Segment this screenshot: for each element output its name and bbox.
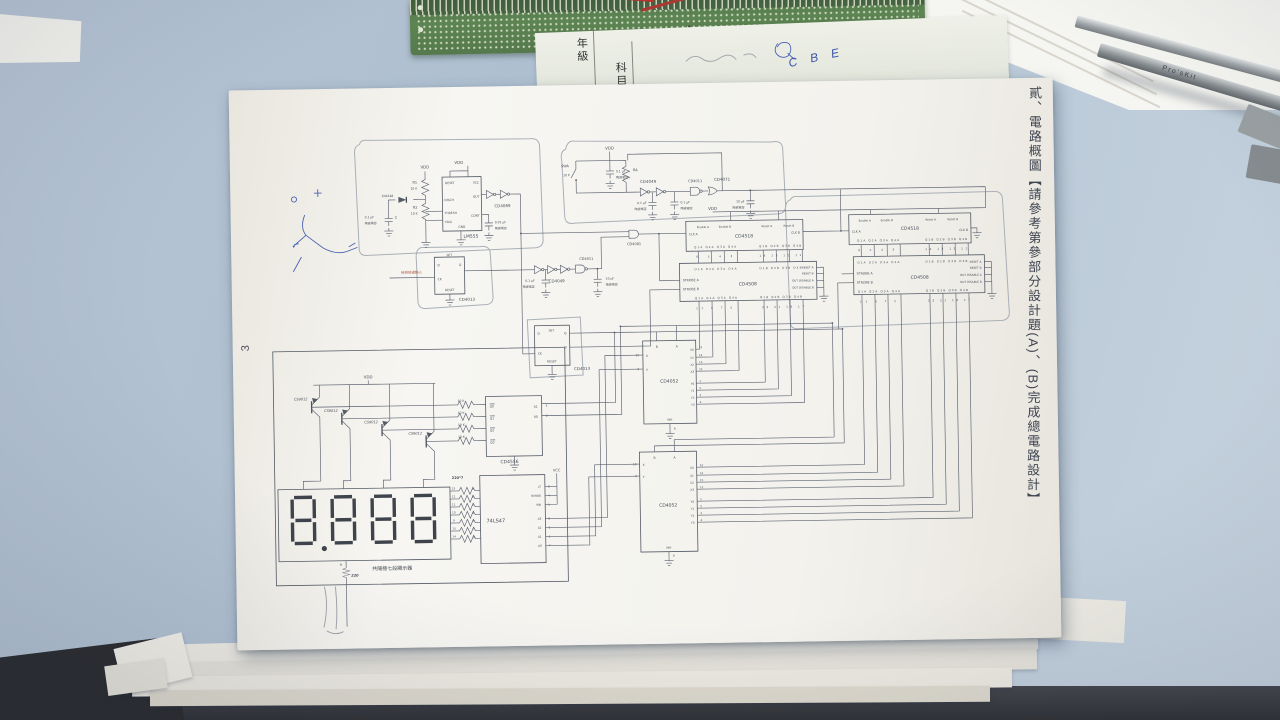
pin-number: 10	[452, 510, 456, 514]
pin-number: 4	[700, 400, 702, 404]
cap-value: 0.01 μF	[495, 220, 507, 224]
cap-type: 陶瓷電容	[635, 206, 647, 211]
pin-row: D1B D2B D3B D4B	[925, 259, 967, 264]
pen-transistor-sketch	[291, 189, 357, 272]
pin-label: Y	[643, 475, 645, 479]
mount-hole	[418, 5, 423, 10]
chip-label: CD4081	[627, 242, 641, 246]
pin-number: 6	[674, 427, 676, 431]
pin-label: Enable B	[719, 225, 731, 229]
pin-label: OUT DISABLE A	[960, 273, 982, 277]
pin-numbers: 14 13 12 11	[925, 246, 967, 251]
resistor-value: 10 K	[458, 399, 466, 403]
chip-label: CD4508	[911, 275, 929, 281]
pin-label: STROBE B	[683, 287, 699, 291]
chip-label: 74LS47	[486, 518, 505, 524]
chip-label: CD4049	[640, 179, 657, 184]
resistor-value: 10 K	[458, 411, 466, 415]
pin-number: 3	[637, 367, 639, 371]
pin-label: Y1	[691, 389, 695, 393]
pin-label: INH	[666, 546, 671, 550]
pin-row: Q1A Q2A Q3A Q4A	[857, 238, 899, 243]
segment-letter: h	[340, 563, 342, 567]
resistor-value: 10 K	[458, 423, 466, 427]
pin-number: 1	[549, 535, 551, 539]
pin-label: OUT DISABLE B	[960, 280, 982, 284]
pin-row: Q1B Q2B Q3B Q4B	[760, 295, 802, 300]
pin-label: Q3	[490, 440, 494, 444]
pin-row: Q1B Q2B Q3B Q4B	[926, 288, 968, 293]
pin-number: 3	[635, 474, 637, 478]
pin-label: CONT	[471, 214, 480, 218]
resistor-value: 220	[351, 574, 359, 578]
pin-label: Reset B	[947, 217, 958, 221]
pin-row: Q1A Q2A Q3A Q4A	[694, 245, 736, 250]
pin-label: B	[656, 345, 658, 349]
pin-label: Q2	[490, 428, 494, 432]
pin-label: SET	[446, 253, 452, 257]
chip-outlines	[270, 169, 989, 586]
pin-label: Y0	[691, 382, 695, 386]
pin-number: 14	[700, 471, 704, 475]
pin-row: Q1A Q2A Q3A Q4A	[858, 289, 900, 294]
chip-label: CD4013	[459, 297, 476, 302]
pin-number: 6	[548, 517, 550, 521]
paper-scrap-top-left	[0, 11, 85, 73]
pin-label: STROBE A	[683, 278, 700, 282]
chip-label: CD4013	[574, 366, 591, 371]
schematic-drawing: VDD VDD R1 10 K R2 10 K 1N4148 0.1 μF 陶瓷…	[229, 78, 1062, 651]
pin-label: STROBE B	[857, 280, 873, 284]
pin-number: 14	[452, 534, 456, 538]
chip-label: CD4052	[660, 378, 678, 384]
pin-label: X	[643, 463, 645, 467]
pin-numbers: 6 5 4 3	[858, 248, 894, 253]
pin-row: Q1A Q2A Q3A Q4A	[695, 296, 737, 301]
vdd-label: VDD	[454, 160, 463, 165]
pin-number: 9	[453, 519, 455, 523]
pin-label: RESET A	[970, 260, 982, 264]
segment-letter: e	[473, 519, 475, 523]
pin-number: 15	[452, 526, 456, 530]
pin-label: TRIG	[444, 220, 453, 224]
pin-label: Y2	[691, 514, 695, 518]
cap-type: 陶瓷電容	[681, 205, 693, 210]
pin-label: X	[646, 354, 648, 358]
pin-label: X0	[690, 466, 694, 470]
pin-label: SET	[549, 328, 555, 332]
pin-label: OUT DISABLE A	[792, 278, 814, 282]
schematic-paper: VDD VDD R1 10 K R2 10 K 1N4148 0.1 μF 陶瓷…	[229, 78, 1062, 651]
pencil-marks	[323, 587, 343, 634]
cap-value: 0.1 μF	[637, 201, 647, 205]
display-caption: 共陽極七段顯示器	[372, 565, 412, 573]
pin-number: 14	[699, 353, 703, 357]
pin-number: 2	[699, 393, 701, 397]
pin-label: Q	[459, 263, 462, 267]
pin-numbers: 11 9 7 5	[696, 306, 732, 311]
pin-number: 15	[699, 360, 703, 364]
page-number: 3	[240, 345, 252, 351]
pin-label: INH	[667, 418, 672, 422]
pin-label: Q1	[490, 416, 494, 420]
resistor-value: 10 K	[410, 187, 418, 191]
pin-label: A0	[534, 415, 538, 419]
pin-number: 3	[546, 404, 548, 408]
pin-label: X3	[690, 488, 694, 492]
pin-number: 2	[700, 511, 702, 515]
pin-label: X2	[690, 363, 694, 367]
pin-label: X2	[690, 481, 694, 485]
pin-label: A1	[534, 405, 538, 409]
pin-label: A	[676, 344, 679, 348]
pin-label: A	[673, 456, 676, 460]
pin-label: X0	[690, 348, 694, 352]
chip-label: CD4518	[735, 233, 753, 239]
pin-number: 12	[699, 345, 703, 349]
pin-label: RESET	[547, 359, 557, 363]
segment-letter: g	[473, 535, 475, 539]
pin-label: Reset A	[762, 224, 773, 228]
pin-label: X3	[690, 370, 694, 374]
transistor-label: CS9012	[294, 397, 308, 401]
cap-type: 陶瓷電容	[495, 225, 507, 230]
pin-number: 1	[699, 379, 701, 383]
chip-label: CD4011	[579, 257, 593, 261]
pin-number: 11	[699, 367, 703, 371]
pin-label: Enable B	[881, 218, 893, 222]
input-label: 待測訊號輸入	[401, 269, 423, 274]
vdd-label: VDD	[605, 145, 614, 150]
chip-label: CD4069	[494, 203, 511, 208]
cap-type: 陶瓷電容	[365, 220, 377, 225]
seven-segment-display	[292, 495, 435, 551]
pin-label: VCC	[473, 181, 479, 185]
chip-label: CD4052	[659, 503, 677, 509]
resistor-value: 10 K	[411, 212, 419, 216]
chip-label: CD4011	[688, 179, 702, 183]
cap-value: 0.1 μF	[365, 215, 375, 219]
pin-label: D	[537, 332, 540, 336]
pin-number: 6	[673, 554, 675, 558]
chip-label: CD4556	[500, 459, 518, 465]
pin-number: 12	[452, 494, 456, 498]
desk-photo: 年級 科目 C B E	[0, 0, 1280, 720]
transistor-label: CS9012	[364, 420, 378, 424]
pin-number: 12	[700, 463, 704, 467]
pin-label: Y2	[691, 396, 695, 400]
pin-label: Y1	[691, 507, 695, 511]
pin-label: B	[653, 456, 655, 460]
pin-number: 5	[548, 503, 550, 507]
pin-number: 13	[635, 353, 639, 357]
pin-label: RESET	[445, 288, 455, 292]
pin-row: D1A D2A D3A D4A	[857, 260, 899, 265]
pin-label: Y	[646, 368, 648, 372]
switch-label: SWA	[561, 164, 570, 168]
mount-hole	[418, 27, 423, 32]
pencil-outline	[561, 138, 786, 224]
pin-number: 3	[548, 485, 550, 489]
vdd-label: VDD	[420, 164, 429, 169]
pin-number: 13	[633, 462, 637, 466]
pin-label: STROBE A	[857, 271, 874, 275]
cap-value: 10 μF	[606, 276, 615, 280]
pin-numbers: 11 9 7 5	[860, 299, 896, 304]
pin-label: Q	[564, 345, 567, 349]
resistor-value: 10 K	[458, 435, 466, 439]
pin-label: A0	[538, 544, 542, 548]
pin-number: 11	[700, 485, 704, 489]
pin-label: X1	[690, 356, 694, 360]
pin-label: Reset A	[925, 217, 936, 221]
chip-label: CD4518	[901, 226, 919, 232]
pin-label: RESET B	[970, 266, 982, 270]
resistor-label: R1	[412, 181, 417, 185]
vdd-label: VDD	[708, 206, 717, 211]
pin-label: CK	[538, 352, 543, 356]
pin-number: 2	[546, 414, 548, 418]
vdd-label: VDD	[364, 374, 373, 379]
chip-label: CD4508	[739, 281, 757, 287]
section-title: 貳、電路概圖【請參考第參部分設計題(A)、(B)完成總電路設計】	[1022, 86, 1044, 607]
resistor-label: R2	[413, 206, 418, 210]
pin-number: 4	[548, 494, 550, 498]
pin-label: OUT	[473, 195, 480, 199]
pin-number: 13	[452, 486, 456, 490]
pin-label: A2	[538, 526, 542, 530]
pin-label: A1	[538, 535, 542, 539]
pin-label: CLK B	[791, 231, 800, 235]
pin-label: OUT DISABLE B	[792, 285, 814, 289]
pin-label: Enable A	[697, 225, 709, 229]
pin-label: Y3	[691, 403, 695, 407]
pin-numbers: 14 13 12 11	[759, 253, 801, 258]
resistor-array-label: 220*7	[452, 476, 464, 480]
cap-type: 陶瓷電容	[616, 174, 628, 179]
pin-label: X1	[690, 474, 694, 478]
pin-label: Reset B	[784, 224, 795, 228]
pin-number: 5	[700, 504, 702, 508]
chip-label: LM555	[463, 234, 478, 240]
cap-value: 0.1 μF	[525, 279, 535, 283]
segment-letter: b	[472, 495, 474, 499]
pin-row: D1A D2A D3A D4A	[694, 267, 736, 272]
cap-type: 陶瓷電容	[732, 204, 744, 209]
cap-value: 10 μF	[736, 199, 745, 203]
pin-label: THRESH	[444, 211, 457, 215]
pin-number: 4	[700, 518, 702, 522]
pin-label: CLK A	[689, 232, 699, 236]
cap-value: 0.1 μF	[616, 169, 626, 173]
pin-label: BI/RBO	[531, 494, 542, 498]
pin-label: RESET	[445, 181, 455, 185]
pin-number: 11	[452, 502, 456, 506]
pin-label: Q	[564, 331, 567, 335]
pin-label: Y0	[691, 500, 695, 504]
pin-label: DISCH	[444, 198, 454, 202]
pin-label: D	[437, 263, 440, 267]
diode-label: 1N4148	[382, 194, 394, 198]
chip-label: CD4071	[714, 177, 731, 182]
segment-letter: a	[472, 487, 474, 491]
pin-number: 15	[700, 478, 704, 482]
pin-numbers: 23 21 19 17	[928, 298, 970, 303]
pin-number: 2	[549, 526, 551, 530]
pin-label: CLK B	[959, 228, 968, 232]
cap-name: C	[395, 216, 398, 220]
transistor-label: CS9012	[324, 409, 338, 413]
pin-label: GND	[458, 225, 466, 229]
pin-label: RESET B	[802, 271, 814, 275]
pin-label: RESET A	[802, 265, 814, 269]
pin-label: Q0	[490, 404, 494, 408]
cap-type: 陶瓷電容	[606, 281, 618, 286]
cap-type: 陶瓷電容	[523, 284, 535, 289]
resistor-value: 10 K	[563, 173, 571, 177]
pin-number: 7	[549, 544, 551, 548]
pin-label: LT	[538, 485, 541, 489]
tweezers-handle	[1246, 144, 1280, 190]
pin-numbers: 23 21 19 17	[762, 304, 804, 309]
pin-label: CLK A	[852, 230, 862, 234]
resistor-label: RA	[633, 168, 638, 172]
pin-label: Enable A	[859, 218, 871, 222]
segment-letter: d	[472, 511, 474, 515]
decimal-point	[322, 546, 327, 551]
vcc-label: VCC	[553, 468, 561, 472]
cap-value: 0.1 μF	[680, 200, 690, 204]
pin-number: 5	[699, 386, 701, 390]
pin-row: Q1B Q2B Q3B Q4B	[759, 244, 801, 249]
pin-label: CK	[438, 277, 443, 281]
transistor-label: CS9012	[408, 431, 422, 435]
pin-number: 1	[700, 497, 702, 501]
pin-label: A3	[538, 517, 542, 521]
pin-numbers: 6 5 4 3	[696, 254, 732, 259]
chip-label: CD4049	[549, 278, 566, 283]
pin-row: D1B D2B D3B D4B	[759, 266, 801, 271]
pin-label: Y3	[691, 521, 695, 525]
pin-row: Q1B Q2B Q3B Q4B	[925, 237, 967, 242]
pin-label: RBI	[536, 503, 541, 507]
